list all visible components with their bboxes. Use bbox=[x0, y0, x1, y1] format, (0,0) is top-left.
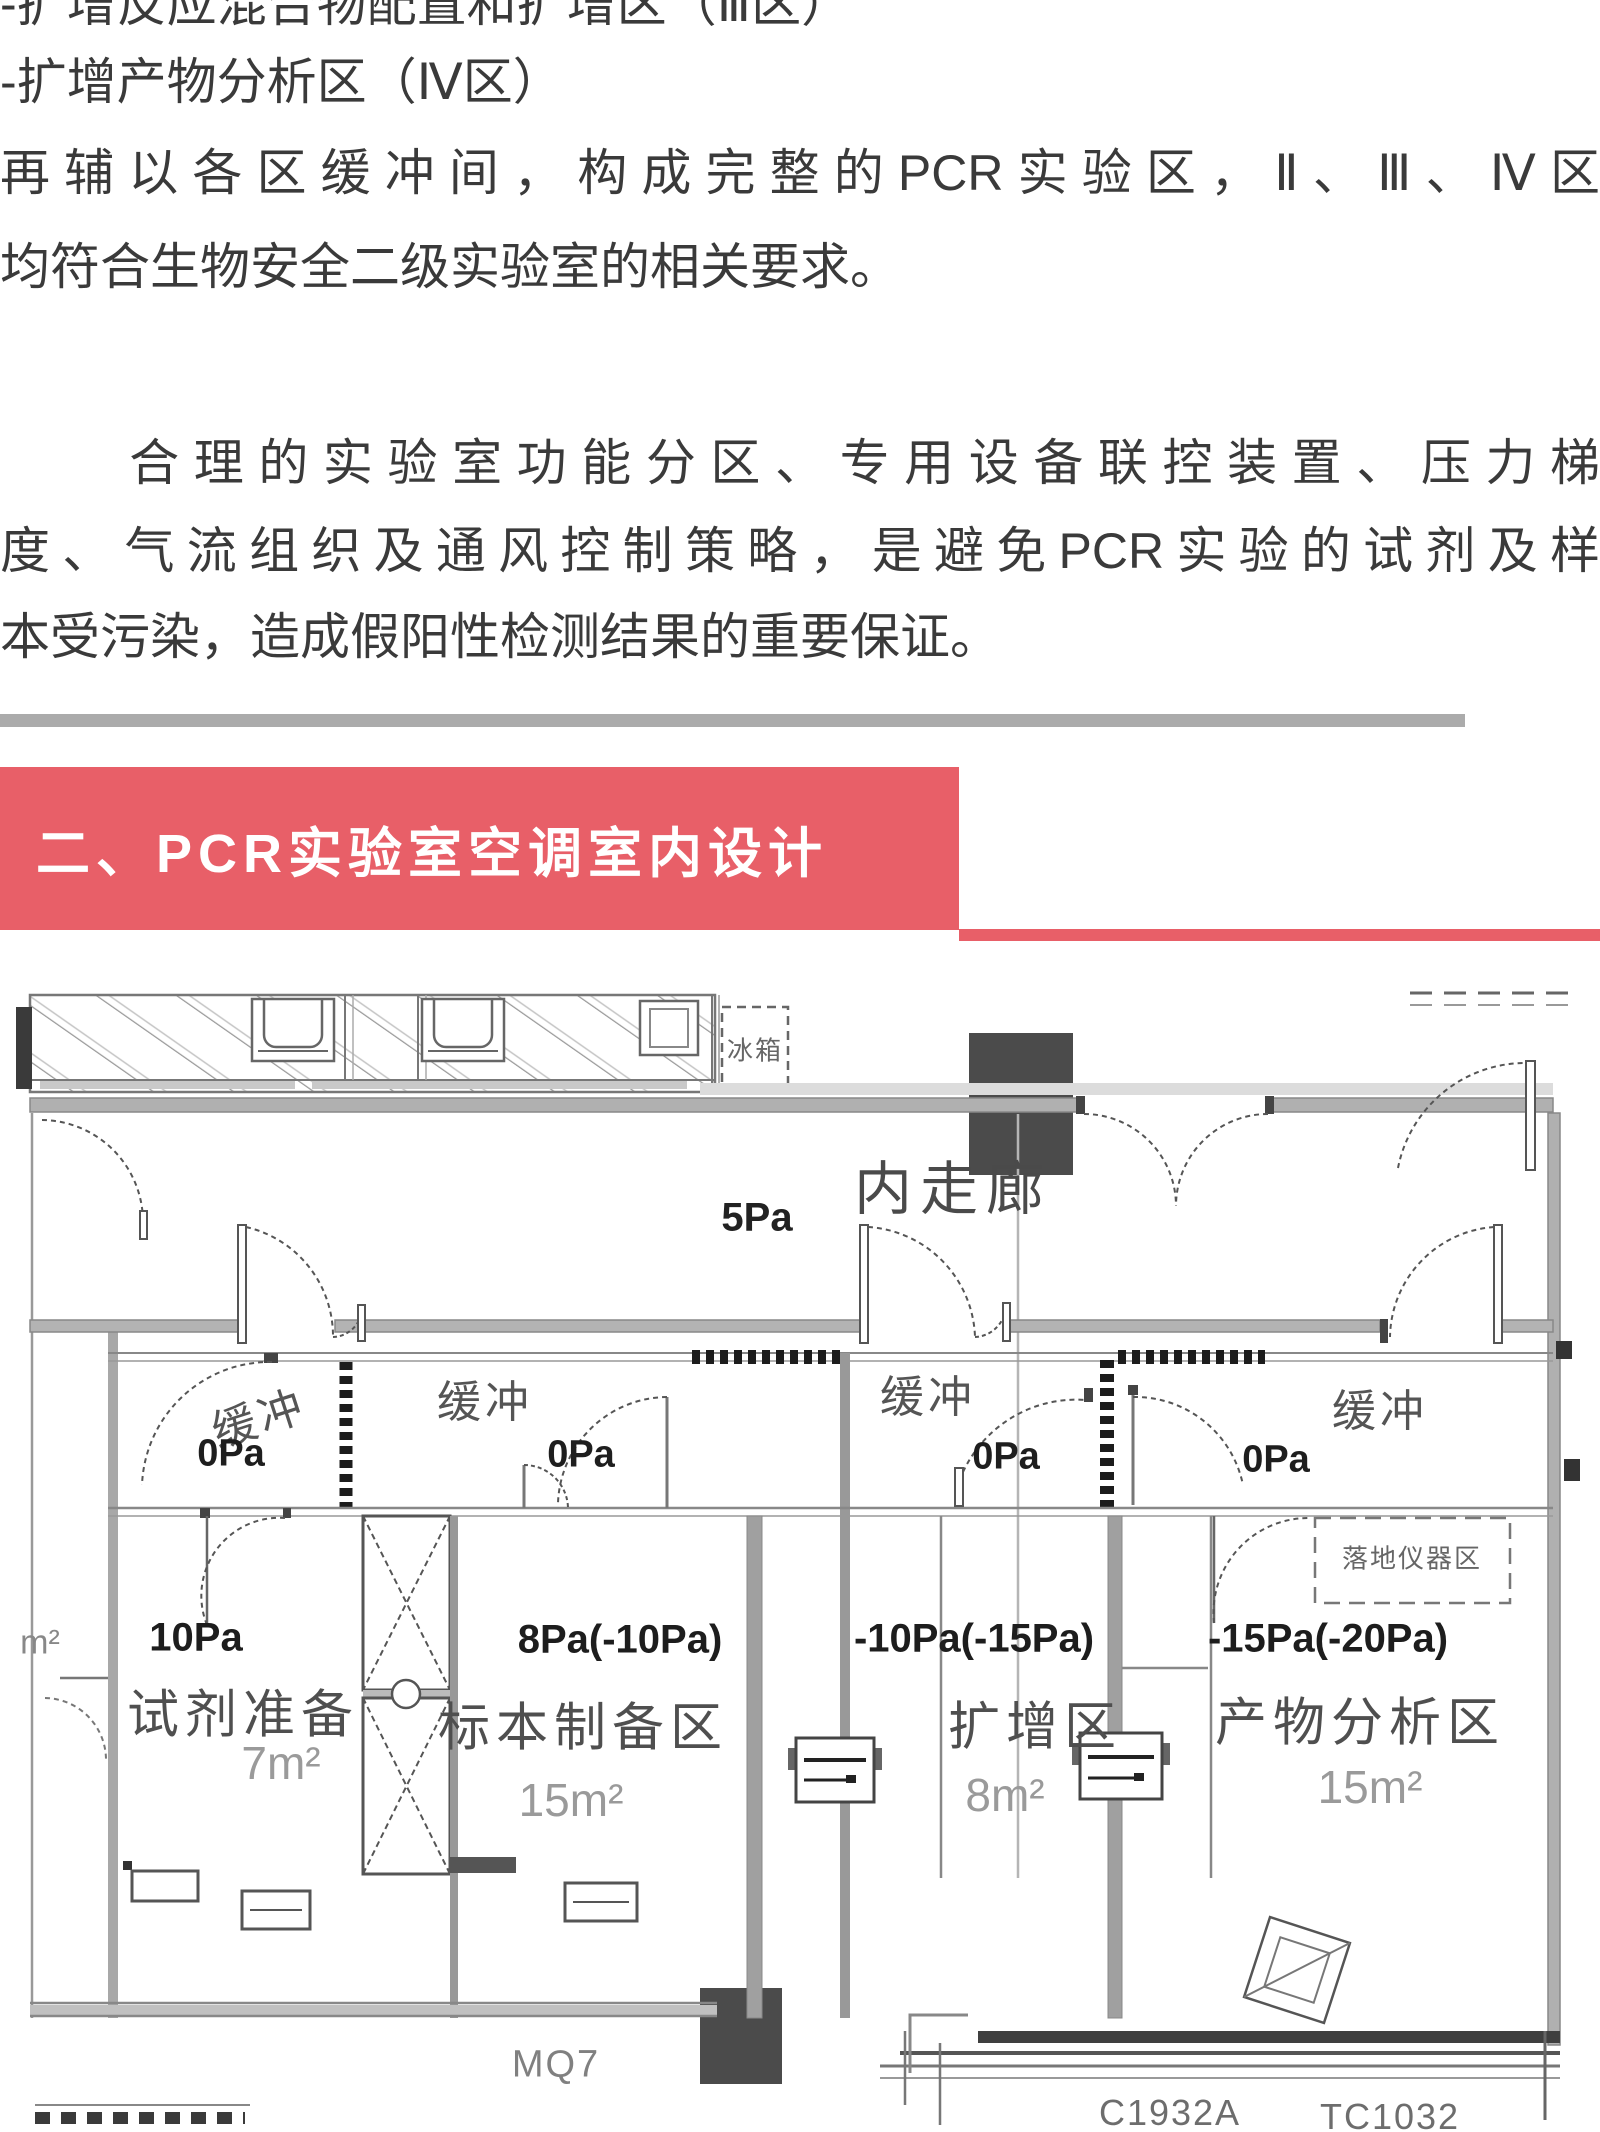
article-p2-line3: 本受污染，造成假阳性检测结果的重要保证。 bbox=[0, 607, 1600, 667]
instrument-zone-label: 落地仪器区 bbox=[1342, 1539, 1482, 1576]
page: -扩增反应混合物配置和扩增区（Ⅲ区） -扩增产物分析区（Ⅳ区） 再辅以各区缓冲间… bbox=[0, 0, 1600, 2132]
specimen-pressure: 8Pa(-10Pa) bbox=[518, 1618, 723, 1663]
article-p1-line2: 均符合生物安全二级实验室的相关要求。 bbox=[0, 237, 1600, 297]
section-banner-tail bbox=[959, 929, 1600, 941]
sink-fixture bbox=[252, 999, 334, 1061]
buffer2-pressure: 0Pa bbox=[547, 1434, 615, 1477]
top-wall-band bbox=[16, 995, 719, 1092]
specimen-name: 标本制备区 bbox=[438, 1686, 728, 1761]
fan-coil-unit bbox=[788, 1738, 882, 1802]
buffer3-label: 缓冲 bbox=[880, 1361, 976, 1425]
buffer3-pressure: 0Pa bbox=[972, 1436, 1040, 1479]
tilted-equipment bbox=[1244, 1917, 1350, 2023]
corridor-label: 内走廊 bbox=[854, 1142, 1052, 1226]
lab-row bbox=[123, 1508, 1510, 2023]
specimen-area: 15m² bbox=[519, 1773, 624, 1827]
amplification-name: 扩增区 bbox=[948, 1685, 1122, 1760]
section-banner: 二、PCR实验室空调室内设计 bbox=[0, 767, 959, 930]
floor-plan-figure: 冰箱 内走廊 5Pa 缓冲 0Pa 缓冲 0Pa 缓冲 0Pa 缓冲 0Pa 1… bbox=[0, 985, 1600, 2132]
article-p2-line2: 度、气流组织及通风控制策略，是避免PCR实验的试剂及样 bbox=[0, 521, 1600, 581]
ahu-cabinet bbox=[363, 1516, 450, 1874]
buffer1-pressure: 0Pa bbox=[197, 1433, 265, 1476]
analysis-pressure: -15Pa(-20Pa) bbox=[1208, 1617, 1448, 1662]
section-divider bbox=[0, 714, 1465, 727]
analysis-area: 15m² bbox=[1318, 1760, 1423, 1814]
article-p2-line1: 合理的实验室功能分区、专用设备联控装置、压力梯 bbox=[0, 433, 1600, 493]
rooms-left-wall bbox=[108, 1320, 118, 2018]
buffer2-label: 缓冲 bbox=[437, 1366, 533, 1430]
drawing-code-mq7: MQ7 bbox=[512, 2044, 600, 2087]
sink-fixture bbox=[422, 999, 504, 1061]
section-title: 二、PCR实验室空调室内设计 bbox=[0, 809, 828, 888]
drawing-code-left: C1932A bbox=[1099, 2092, 1241, 2132]
reagent-pressure: 10Pa bbox=[149, 1616, 242, 1661]
wall-stub bbox=[16, 1007, 32, 1089]
reagent-area: 7m² bbox=[241, 1736, 320, 1790]
article-line-clipped: -扩增反应混合物配置和扩增区（Ⅲ区） bbox=[0, 0, 1600, 34]
article-line-iv: -扩增产物分析区（Ⅳ区） bbox=[0, 52, 1600, 112]
partial-area-label: m² bbox=[20, 1624, 60, 1663]
corridor-bottom-wall bbox=[30, 1120, 1553, 1361]
buffer4-pressure: 0Pa bbox=[1242, 1439, 1310, 1482]
buffer4-label: 缓冲 bbox=[1332, 1375, 1428, 1439]
fridge-label: 冰箱 bbox=[727, 1031, 783, 1068]
counter-fixture bbox=[640, 1001, 698, 1055]
amplification-pressure: -10Pa(-15Pa) bbox=[854, 1617, 1094, 1662]
corridor-pressure-label: 5Pa bbox=[721, 1196, 792, 1241]
drawing-code-right: TC1032 bbox=[1320, 2096, 1460, 2132]
analysis-name: 产物分析区 bbox=[1215, 1681, 1505, 1756]
amplification-area: 8m² bbox=[965, 1768, 1044, 1822]
right-wall bbox=[1548, 1113, 1560, 2045]
article-p1-line1: 再辅以各区缓冲间，构成完整的PCR实验区，Ⅱ、Ⅲ、Ⅳ区 bbox=[0, 143, 1600, 203]
